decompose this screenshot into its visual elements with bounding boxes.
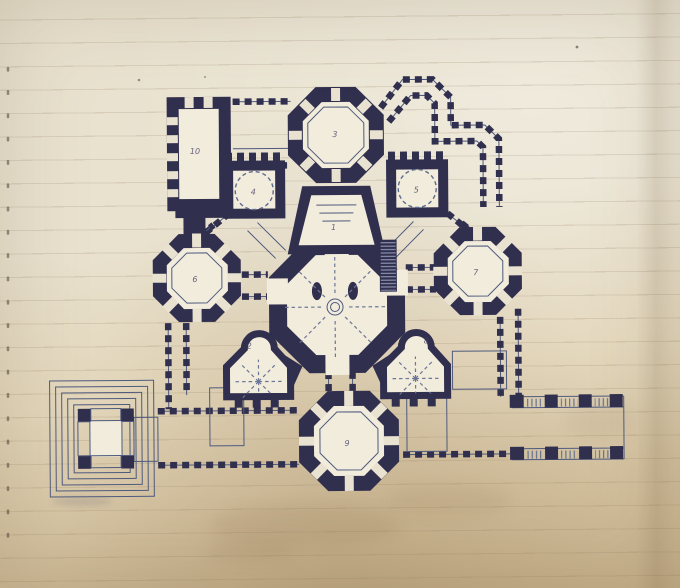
notebook-photo: 1 2 3 4 5 6 7 8 9 10 bbox=[0, 0, 680, 588]
photo-vignette bbox=[0, 0, 680, 588]
